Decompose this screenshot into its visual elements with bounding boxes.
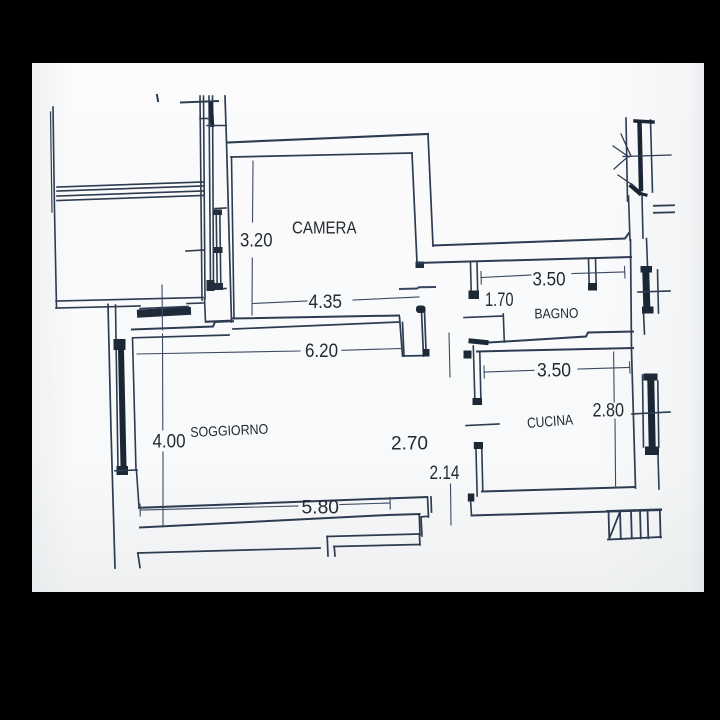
svg-text:2.70: 2.70 [391, 433, 428, 455]
svg-text:4.35: 4.35 [309, 291, 343, 313]
svg-text:6.20: 6.20 [305, 340, 338, 362]
svg-text:5.80: 5.80 [302, 497, 340, 519]
svg-text:SOGGIORNO: SOGGIORNO [190, 421, 269, 440]
svg-text:BAGNO: BAGNO [534, 305, 578, 322]
svg-text:3.50: 3.50 [537, 360, 571, 382]
svg-text:CAMERA: CAMERA [292, 218, 357, 238]
svg-text:1.70: 1.70 [485, 289, 514, 311]
svg-text:3.20: 3.20 [240, 230, 273, 252]
svg-text:2.14: 2.14 [430, 462, 460, 484]
svg-text:4.00: 4.00 [153, 431, 186, 453]
svg-text:3.50: 3.50 [533, 269, 566, 291]
svg-text:2.80: 2.80 [593, 400, 625, 422]
